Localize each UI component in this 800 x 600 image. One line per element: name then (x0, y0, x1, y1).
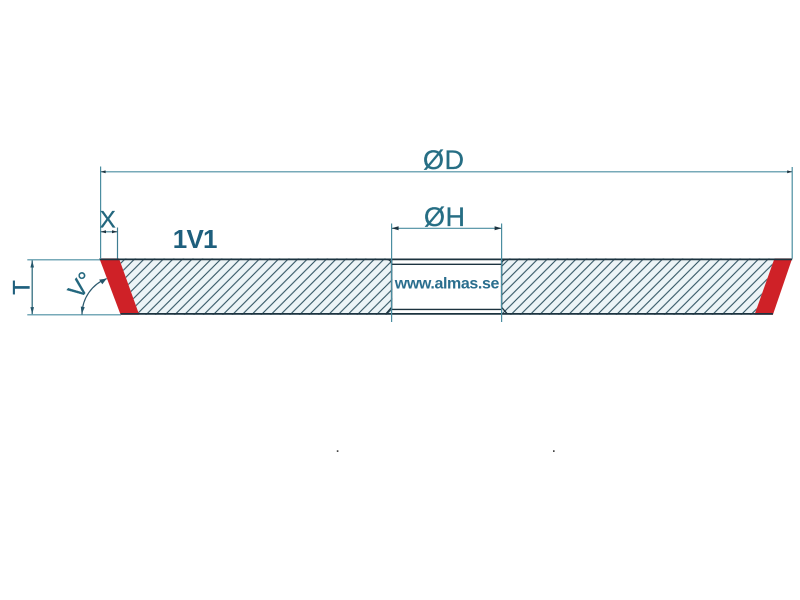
svg-text:T: T (9, 280, 36, 295)
svg-text:ØD: ØD (423, 145, 465, 175)
svg-text:ØH: ØH (424, 202, 466, 232)
svg-text:X: X (100, 207, 116, 234)
svg-text:1V1: 1V1 (173, 224, 217, 254)
svg-text:www.almas.se: www.almas.se (394, 276, 500, 293)
